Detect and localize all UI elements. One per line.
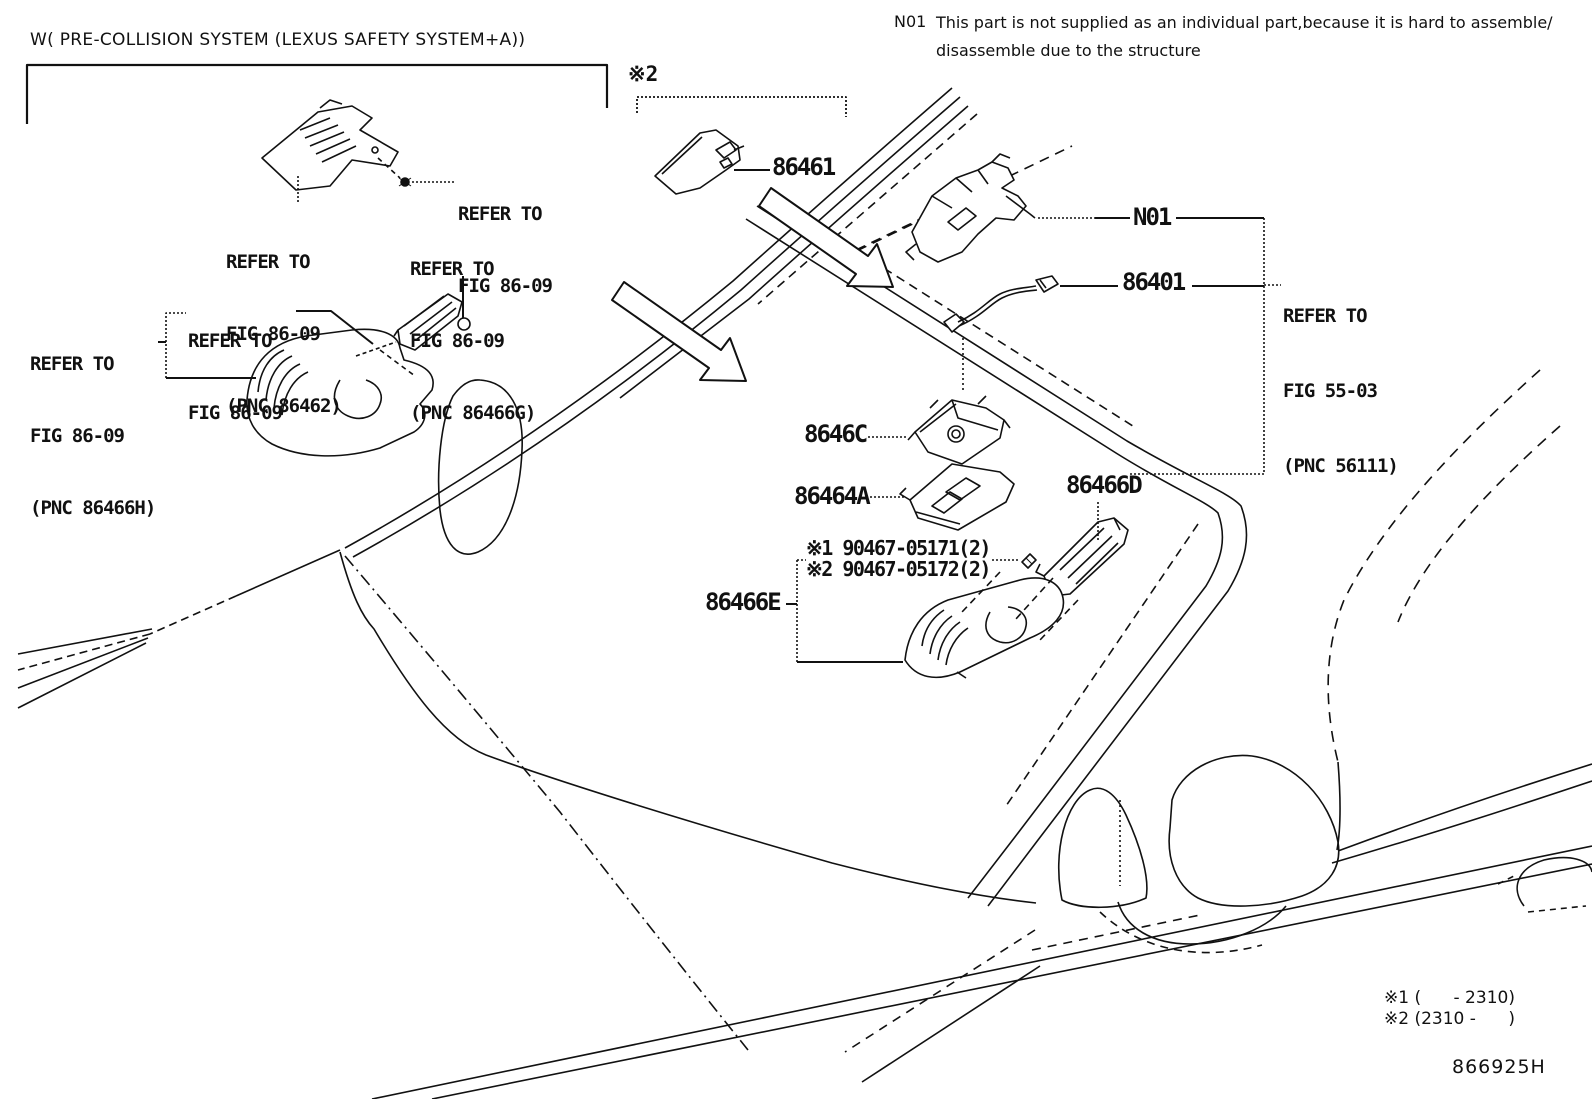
callout-86461: 86461 (772, 153, 834, 181)
callout-86466d: 86466D (1066, 471, 1141, 499)
callout-86401: 86401 (1122, 268, 1184, 296)
callout-n01: N01 (1133, 203, 1170, 231)
diagram-title: W( PRE-COLLISION SYSTEM (LEXUS SAFETY SY… (30, 30, 525, 50)
part-camera-8646c (908, 396, 1010, 464)
note-line-1: This part is not supplied as an individu… (936, 13, 1553, 32)
ref-line: (PNC 86466H) (30, 496, 155, 520)
footnote-2: ※2 (2310 - ) (1384, 1009, 1515, 1029)
part-cover-86466e (905, 578, 1063, 678)
ref-line: REFER TO (188, 329, 282, 353)
ref-line: FIG 86-09 (410, 329, 535, 353)
ref-fig-86-09-pnc-86466h: REFER TO FIG 86-09 (PNC 86466H) (30, 304, 155, 568)
arrow-icon (612, 282, 746, 381)
ref-fig-55-03-pnc-56111: REFER TO FIG 55-03 (PNC 56111) (1283, 254, 1398, 529)
callout-86466e: 86466E (705, 588, 780, 616)
parts-diagram-page: W( PRE-COLLISION SYSTEM (LEXUS SAFETY SY… (0, 0, 1592, 1099)
ref-fig-86-09-pnc-86466g: REFER TO FIG 86-09 (PNC 86466G) (410, 209, 535, 473)
variant-marker-x2: ※2 (628, 62, 658, 86)
callout-8646c: 8646C (804, 420, 866, 448)
ref-line: REFER TO (1283, 304, 1398, 329)
screw-icon (399, 178, 411, 186)
ref-line: (PNC 86466G) (410, 401, 535, 425)
part-cover-86464a (900, 464, 1014, 530)
ref-fig-86-09-mid: REFER TO FIG 86-09 (188, 281, 282, 473)
clip-screw-icon (1022, 554, 1036, 568)
part-camera-bracket-assy (262, 100, 398, 190)
callout-86464a: 86464A (794, 482, 869, 510)
ref-line: FIG 86-09 (188, 401, 282, 425)
ref-line: FIG 86-09 (30, 424, 155, 448)
footnote-1: ※1 ( - 2310) (1384, 988, 1515, 1008)
part-roof-bracket-n01 (906, 154, 1035, 262)
note-line-2: disassemble due to the structure (936, 41, 1201, 60)
ref-line: FIG 55-03 (1283, 379, 1398, 404)
ref-line: REFER TO (30, 352, 155, 376)
direction-arrows (612, 188, 893, 381)
ref-line: (PNC 56111) (1283, 454, 1398, 479)
part-wire-86401 (944, 276, 1058, 332)
callout-bolt-variant-2: ※2 90467-05172(2) (806, 557, 990, 581)
drawing-number: 866925H (1452, 1056, 1546, 1078)
ref-line: REFER TO (410, 257, 535, 281)
note-code: N01 (894, 12, 926, 31)
ref-line: REFER TO (226, 250, 341, 274)
part-mirror-cover-86461 (655, 130, 744, 194)
